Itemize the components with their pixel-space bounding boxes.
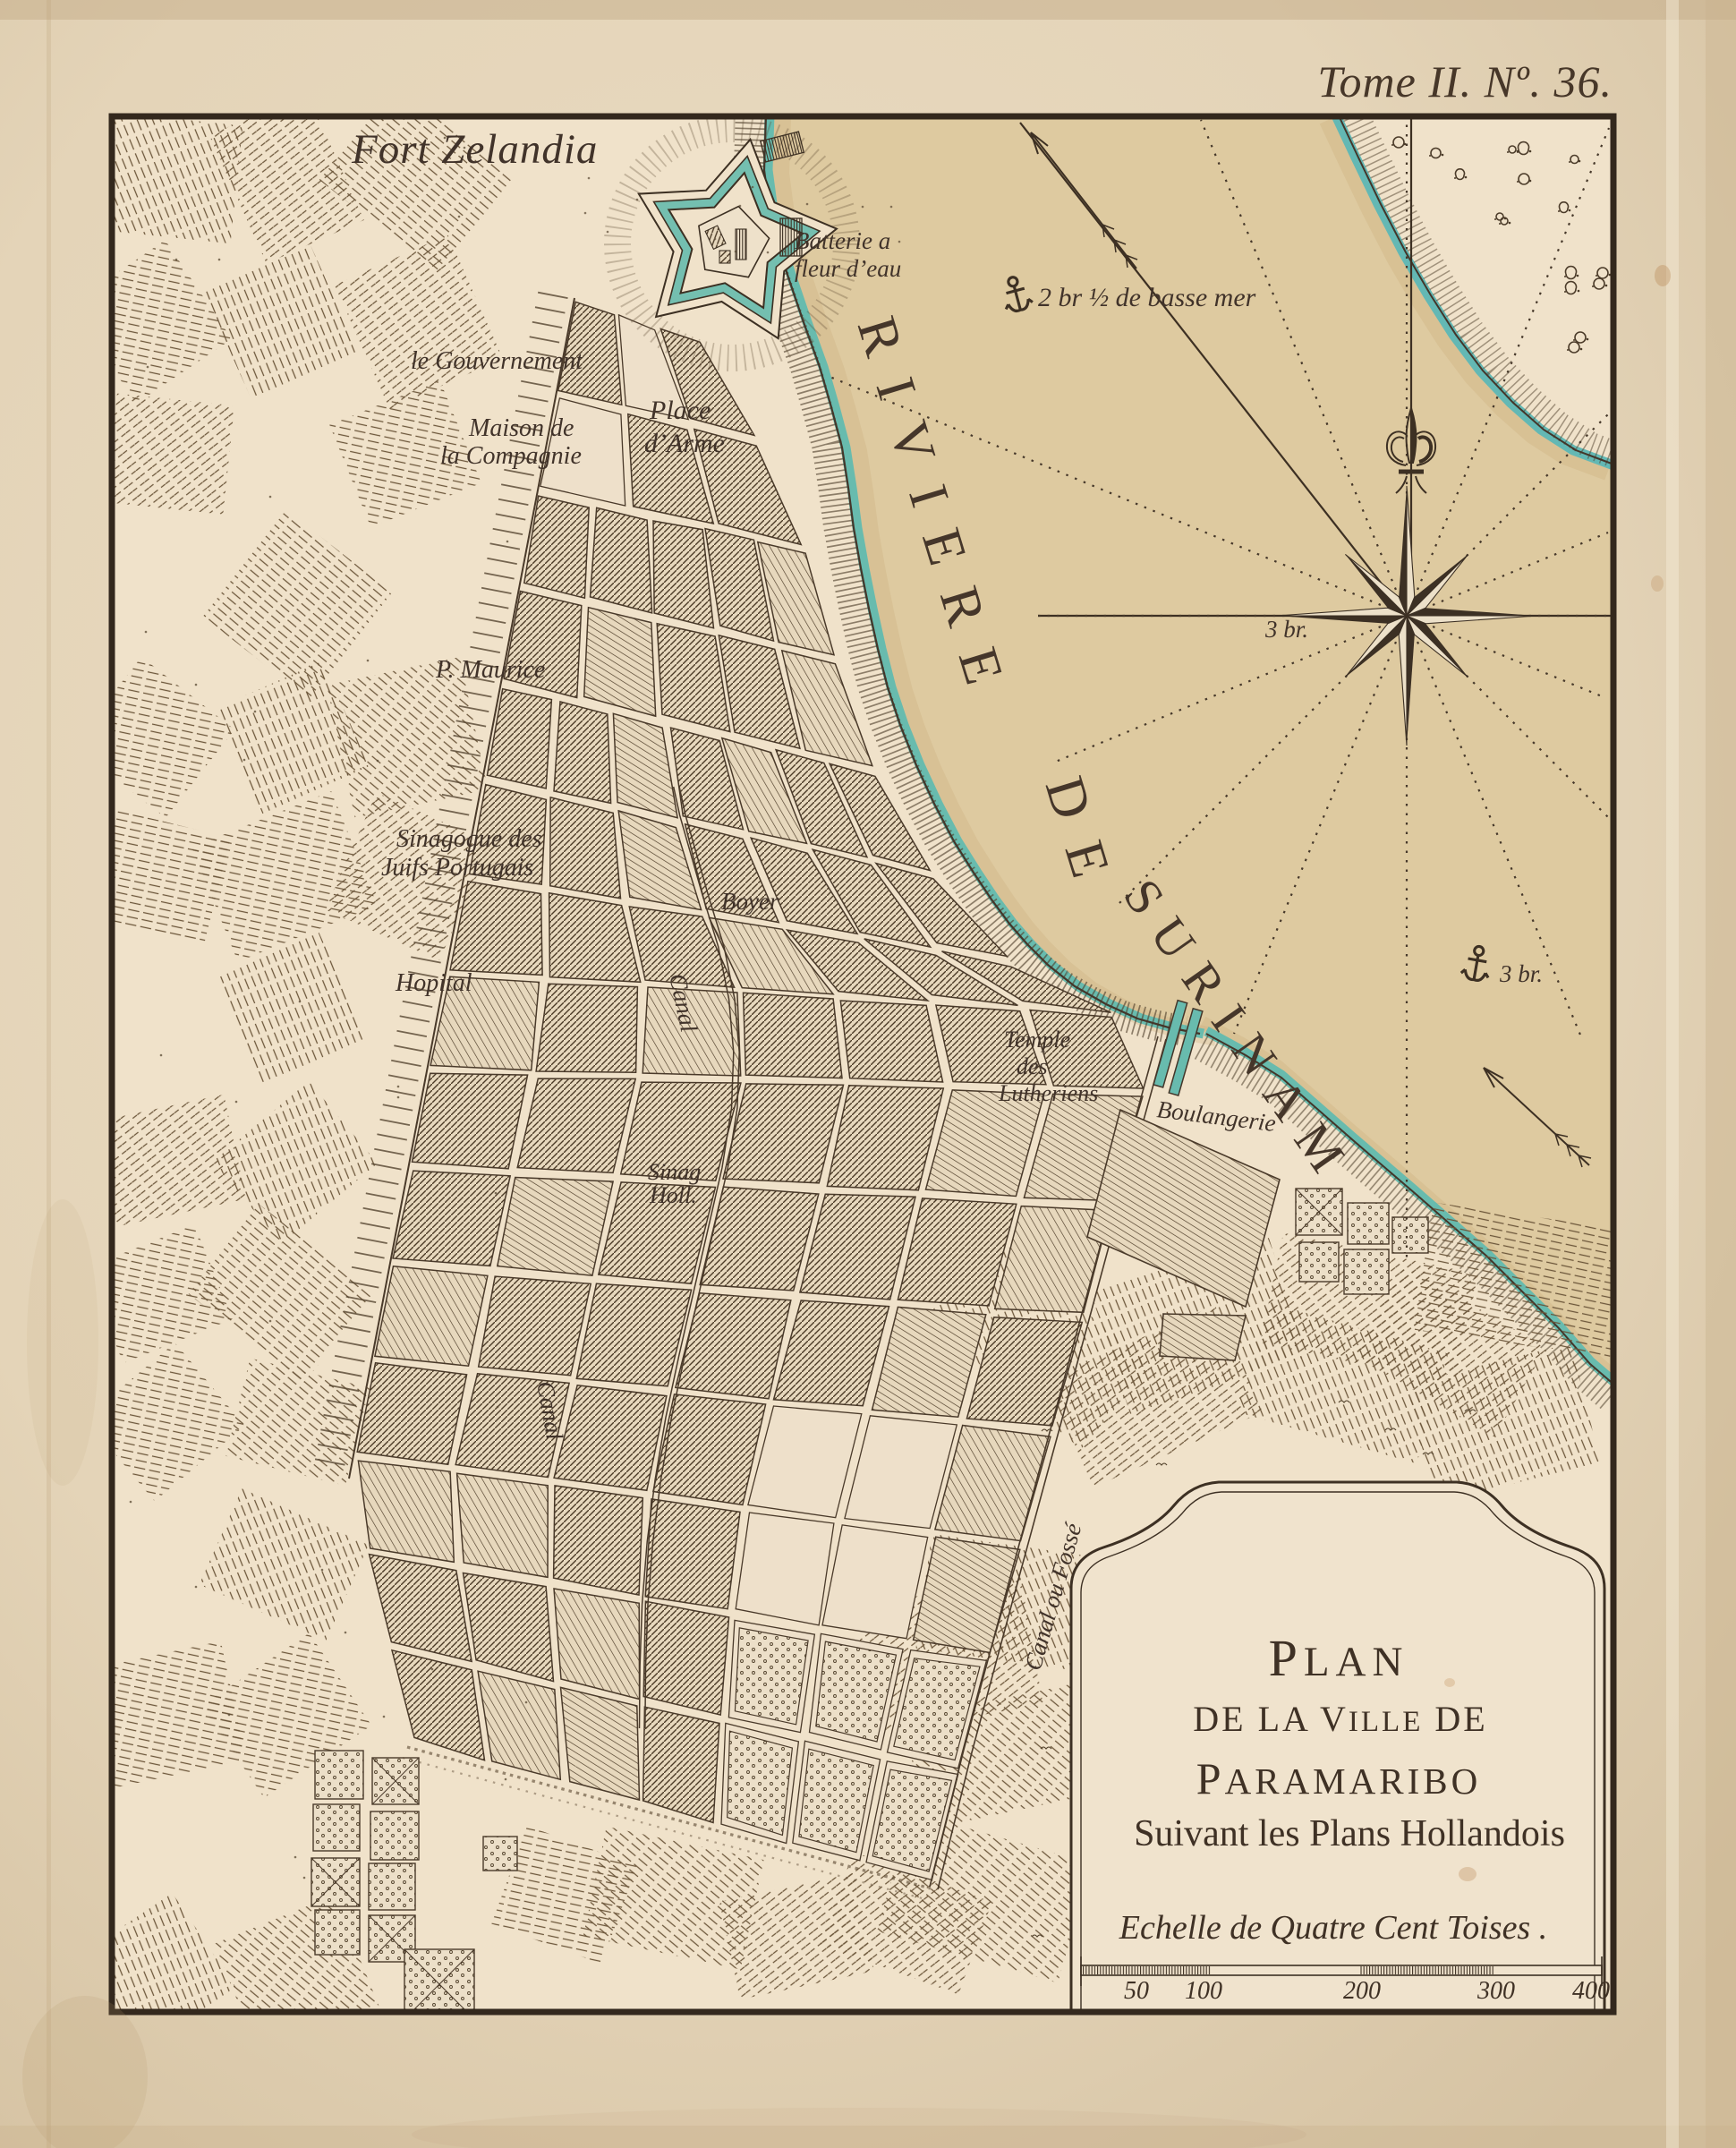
- svg-text:Maison de: Maison de: [468, 414, 574, 442]
- svg-text:Juifs Portugais: Juifs Portugais: [381, 854, 533, 882]
- svg-text:Sinag: Sinag: [648, 1159, 701, 1185]
- svg-text:3 br.: 3 br.: [1499, 960, 1543, 987]
- svg-text:100: 100: [1185, 1977, 1222, 2005]
- svg-text:Hopital: Hopital: [395, 969, 472, 997]
- svg-text:50: 50: [1124, 1977, 1149, 2005]
- svg-text:PARAMARIBO: PARAMARIBO: [1196, 1753, 1481, 1803]
- svg-text:Batterie a: Batterie a: [795, 227, 890, 254]
- svg-text:fleur d’eau: fleur d’eau: [795, 255, 901, 282]
- svg-text:Lutheriens: Lutheriens: [998, 1080, 1098, 1106]
- svg-text:200: 200: [1343, 1977, 1381, 2005]
- svg-text:d’Arme: d’Arme: [644, 429, 725, 458]
- svg-text:Holl.: Holl.: [649, 1182, 697, 1208]
- svg-text:P. Maurice: P. Maurice: [435, 656, 545, 684]
- svg-text:le Gouvernement: le Gouvernement: [411, 347, 583, 375]
- svg-text:Sinagogue des: Sinagogue des: [396, 825, 542, 853]
- svg-text:400: 400: [1572, 1977, 1610, 2005]
- svg-text:des: des: [1017, 1053, 1048, 1079]
- svg-text:2 br ½ de basse mer: 2 br ½ de basse mer: [1038, 283, 1256, 312]
- svg-text:Fort Zelandia: Fort Zelandia: [351, 126, 598, 173]
- svg-text:DE LA VILLE DE: DE LA VILLE DE: [1193, 1699, 1487, 1739]
- svg-text:Boyer: Boyer: [721, 888, 779, 915]
- svg-text:Temple: Temple: [1004, 1027, 1070, 1053]
- svg-text:Place: Place: [649, 396, 711, 425]
- svg-text:Tome II. Nº. 36.: Tome II. Nº. 36.: [1317, 56, 1613, 107]
- svg-text:3 br.: 3 br.: [1264, 616, 1308, 643]
- svg-text:Suivant les Plans Hollandois: Suivant les Plans Hollandois: [1134, 1813, 1565, 1854]
- svg-text:Echelle de Quatre Cent Toises: Echelle de Quatre Cent Toises .: [1119, 1909, 1547, 1947]
- svg-text:300: 300: [1476, 1977, 1515, 2005]
- svg-text:la Compagnie: la Compagnie: [440, 442, 582, 470]
